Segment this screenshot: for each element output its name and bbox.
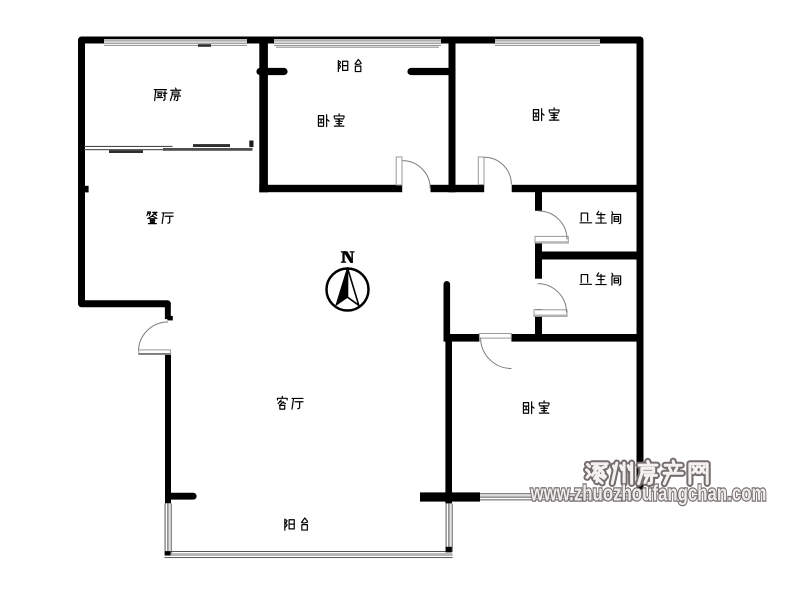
svg-text:www.zhuozhoufangchan.com: www.zhuozhoufangchan.com [530, 481, 767, 506]
